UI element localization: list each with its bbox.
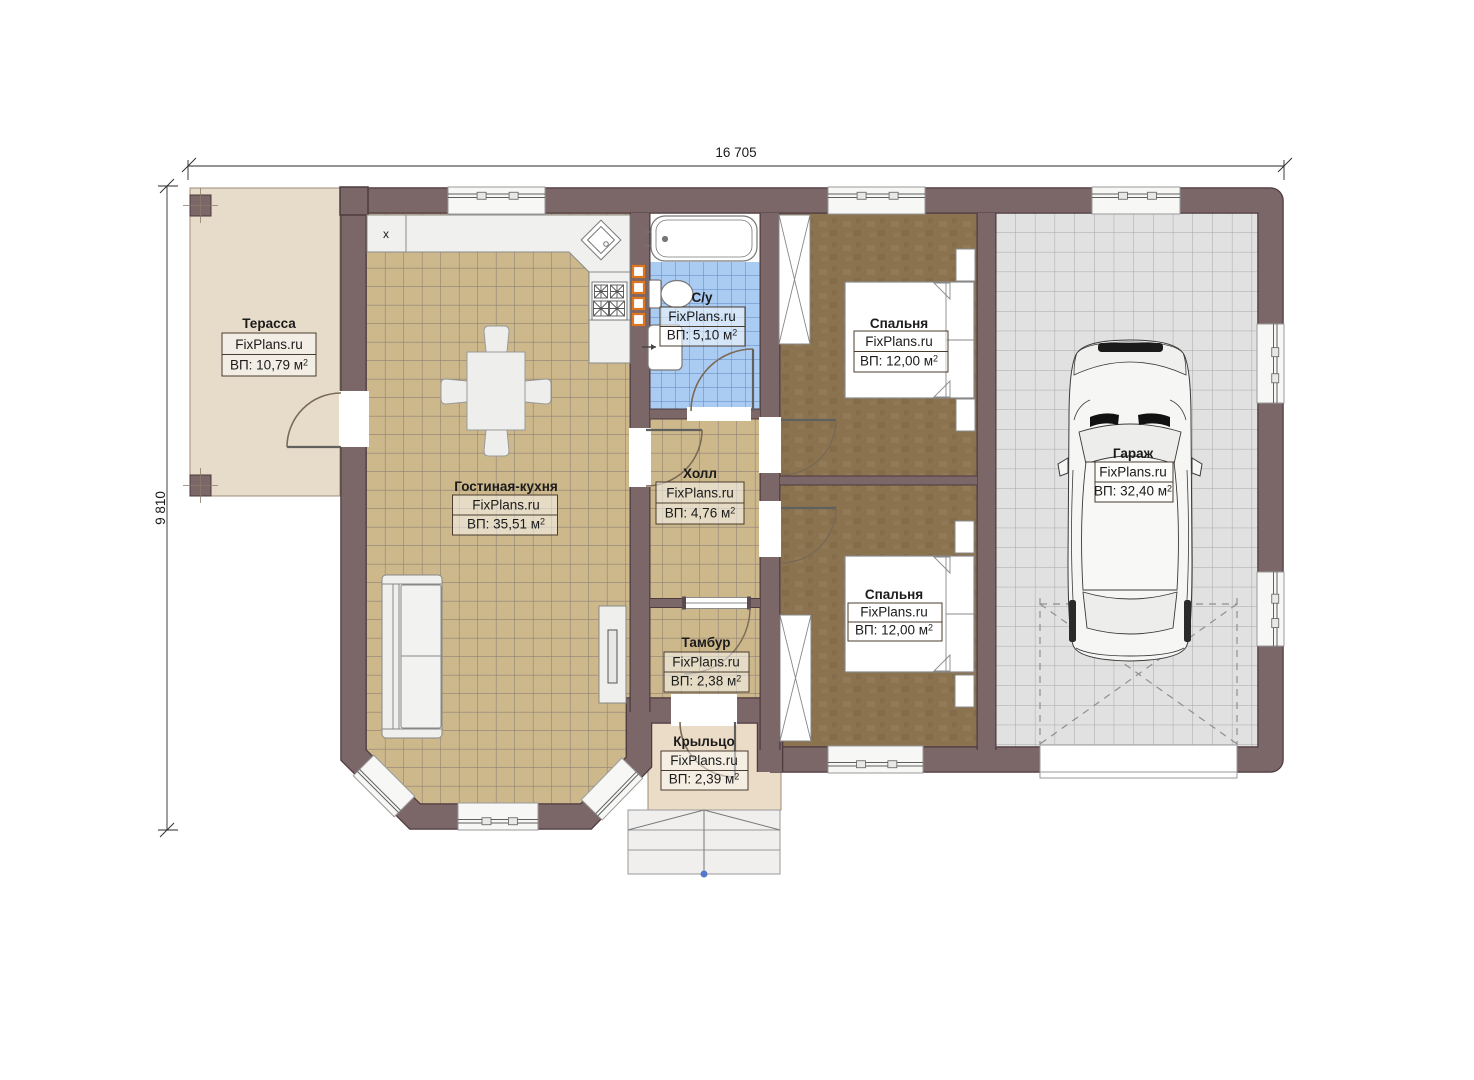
svg-text:16 705: 16 705 bbox=[715, 145, 756, 160]
svg-text:ВП: 32,40 м2: ВП: 32,40 м2 bbox=[1094, 484, 1172, 499]
svg-text:FixPlans.ru: FixPlans.ru bbox=[668, 309, 736, 324]
svg-text:Спальня: Спальня bbox=[870, 316, 928, 331]
svg-text:FixPlans.ru: FixPlans.ru bbox=[666, 486, 734, 501]
svg-text:FixPlans.ru: FixPlans.ru bbox=[672, 655, 740, 670]
svg-text:ВП: 4,76 м2: ВП: 4,76 м2 bbox=[665, 506, 736, 521]
svg-text:FixPlans.ru: FixPlans.ru bbox=[1099, 465, 1167, 480]
svg-text:Гостиная-кухня: Гостиная-кухня bbox=[454, 479, 557, 494]
svg-text:ВП: 35,51 м2: ВП: 35,51 м2 bbox=[467, 517, 545, 532]
svg-text:Спальня: Спальня bbox=[865, 587, 923, 602]
svg-text:9 810: 9 810 bbox=[153, 491, 168, 525]
svg-text:ВП: 5,10 м2: ВП: 5,10 м2 bbox=[667, 328, 738, 343]
svg-text:x: x bbox=[383, 227, 389, 241]
svg-text:ВП: 2,39 м2: ВП: 2,39 м2 bbox=[669, 772, 740, 787]
svg-text:Крыльцо: Крыльцо bbox=[673, 734, 734, 749]
svg-text:FixPlans.ru: FixPlans.ru bbox=[235, 337, 303, 352]
svg-text:FixPlans.ru: FixPlans.ru bbox=[865, 334, 933, 349]
svg-text:ВП: 10,79 м2: ВП: 10,79 м2 bbox=[230, 358, 308, 373]
svg-text:FixPlans.ru: FixPlans.ru bbox=[670, 753, 738, 768]
svg-text:ВП: 12,00 м2: ВП: 12,00 м2 bbox=[860, 354, 938, 369]
svg-text:Холл: Холл bbox=[683, 466, 717, 481]
svg-text:ВП: 12,00 м2: ВП: 12,00 м2 bbox=[855, 623, 933, 638]
svg-text:Тамбур: Тамбур bbox=[682, 635, 731, 650]
svg-text:FixPlans.ru: FixPlans.ru bbox=[472, 498, 540, 513]
svg-text:С/у: С/у bbox=[691, 290, 713, 305]
svg-text:Терасса: Терасса bbox=[242, 316, 296, 331]
svg-text:Гараж: Гараж bbox=[1113, 446, 1154, 461]
svg-text:FixPlans.ru: FixPlans.ru bbox=[860, 605, 928, 620]
svg-text:ВП: 2,38 м2: ВП: 2,38 м2 bbox=[671, 674, 742, 689]
